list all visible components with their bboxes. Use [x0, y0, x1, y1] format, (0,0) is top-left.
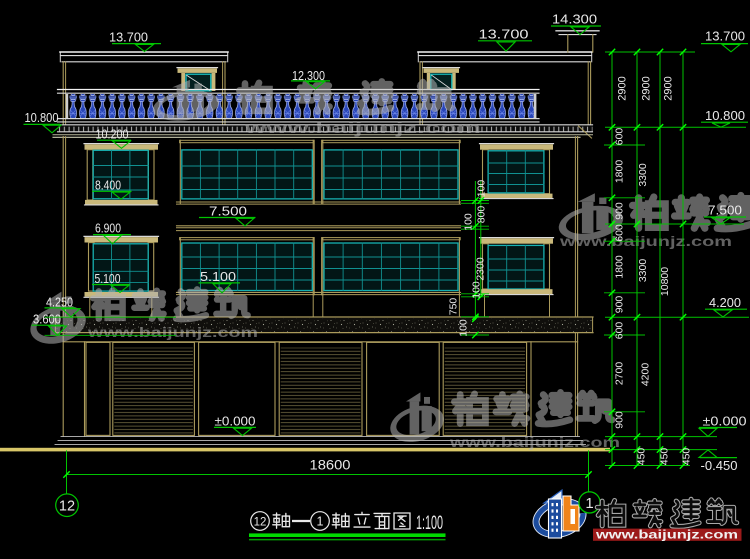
svg-text:14.300: 14.300: [552, 12, 597, 27]
svg-text:450: 450: [659, 448, 671, 466]
svg-text:www.baijunjz.com: www.baijunjz.com: [595, 530, 738, 542]
svg-text:1800: 1800: [614, 160, 626, 184]
svg-text:2300: 2300: [475, 257, 487, 281]
svg-text:6.900: 6.900: [95, 221, 121, 236]
svg-text:12: 12: [254, 516, 267, 528]
svg-text:3.600: 3.600: [33, 312, 61, 327]
svg-text:100: 100: [471, 281, 483, 299]
svg-text:www.baijunjz.com: www.baijunjz.com: [243, 120, 481, 137]
svg-text:100: 100: [476, 180, 488, 198]
svg-text:100: 100: [463, 213, 475, 231]
svg-text:2900: 2900: [641, 76, 653, 100]
svg-text:10.800: 10.800: [25, 110, 59, 125]
svg-text:12: 12: [59, 498, 75, 514]
svg-text:5.100: 5.100: [95, 271, 121, 286]
svg-text:900: 900: [614, 411, 626, 429]
svg-text:1:100: 1:100: [416, 512, 443, 534]
svg-text:800: 800: [476, 206, 488, 224]
svg-text:1800: 1800: [614, 255, 626, 279]
svg-text:600: 600: [614, 128, 626, 146]
svg-text:-0.450: -0.450: [701, 458, 738, 473]
svg-text:1: 1: [317, 515, 324, 529]
svg-text:4.200: 4.200: [709, 295, 741, 310]
svg-text:13.700: 13.700: [479, 27, 529, 42]
svg-text:www.baijunjz.com: www.baijunjz.com: [87, 325, 258, 340]
svg-text:600: 600: [614, 224, 626, 242]
svg-text:2700: 2700: [614, 362, 626, 386]
svg-text:100: 100: [458, 319, 470, 337]
svg-text:1: 1: [585, 495, 593, 512]
svg-text:2900: 2900: [617, 76, 629, 100]
svg-text:3300: 3300: [637, 163, 649, 187]
svg-text:13.700: 13.700: [705, 29, 745, 44]
svg-text:750: 750: [448, 298, 460, 316]
svg-text:600: 600: [614, 322, 626, 340]
svg-text:7.500: 7.500: [708, 202, 742, 217]
svg-text:5.100: 5.100: [200, 269, 236, 284]
svg-text:10800: 10800: [659, 267, 671, 296]
svg-text:18600: 18600: [310, 457, 351, 473]
svg-text:8.400: 8.400: [95, 177, 121, 192]
svg-text:10.800: 10.800: [705, 108, 745, 123]
svg-text:450: 450: [681, 448, 693, 466]
svg-text:±0.000: ±0.000: [703, 413, 747, 428]
svg-text:10.200: 10.200: [96, 126, 129, 141]
svg-text:13.700: 13.700: [109, 30, 148, 45]
svg-text:3300: 3300: [637, 259, 649, 283]
svg-text:4200: 4200: [640, 363, 652, 387]
svg-text:900: 900: [614, 296, 626, 314]
svg-text:www.baijunjz.com: www.baijunjz.com: [449, 435, 620, 450]
svg-text:7.500: 7.500: [209, 203, 247, 218]
svg-text:2900: 2900: [663, 76, 675, 100]
svg-text:www.baijunjz.com: www.baijunjz.com: [559, 234, 732, 249]
svg-text:900: 900: [614, 202, 626, 220]
svg-text:450: 450: [636, 448, 648, 466]
svg-text:±0.000: ±0.000: [215, 413, 256, 428]
